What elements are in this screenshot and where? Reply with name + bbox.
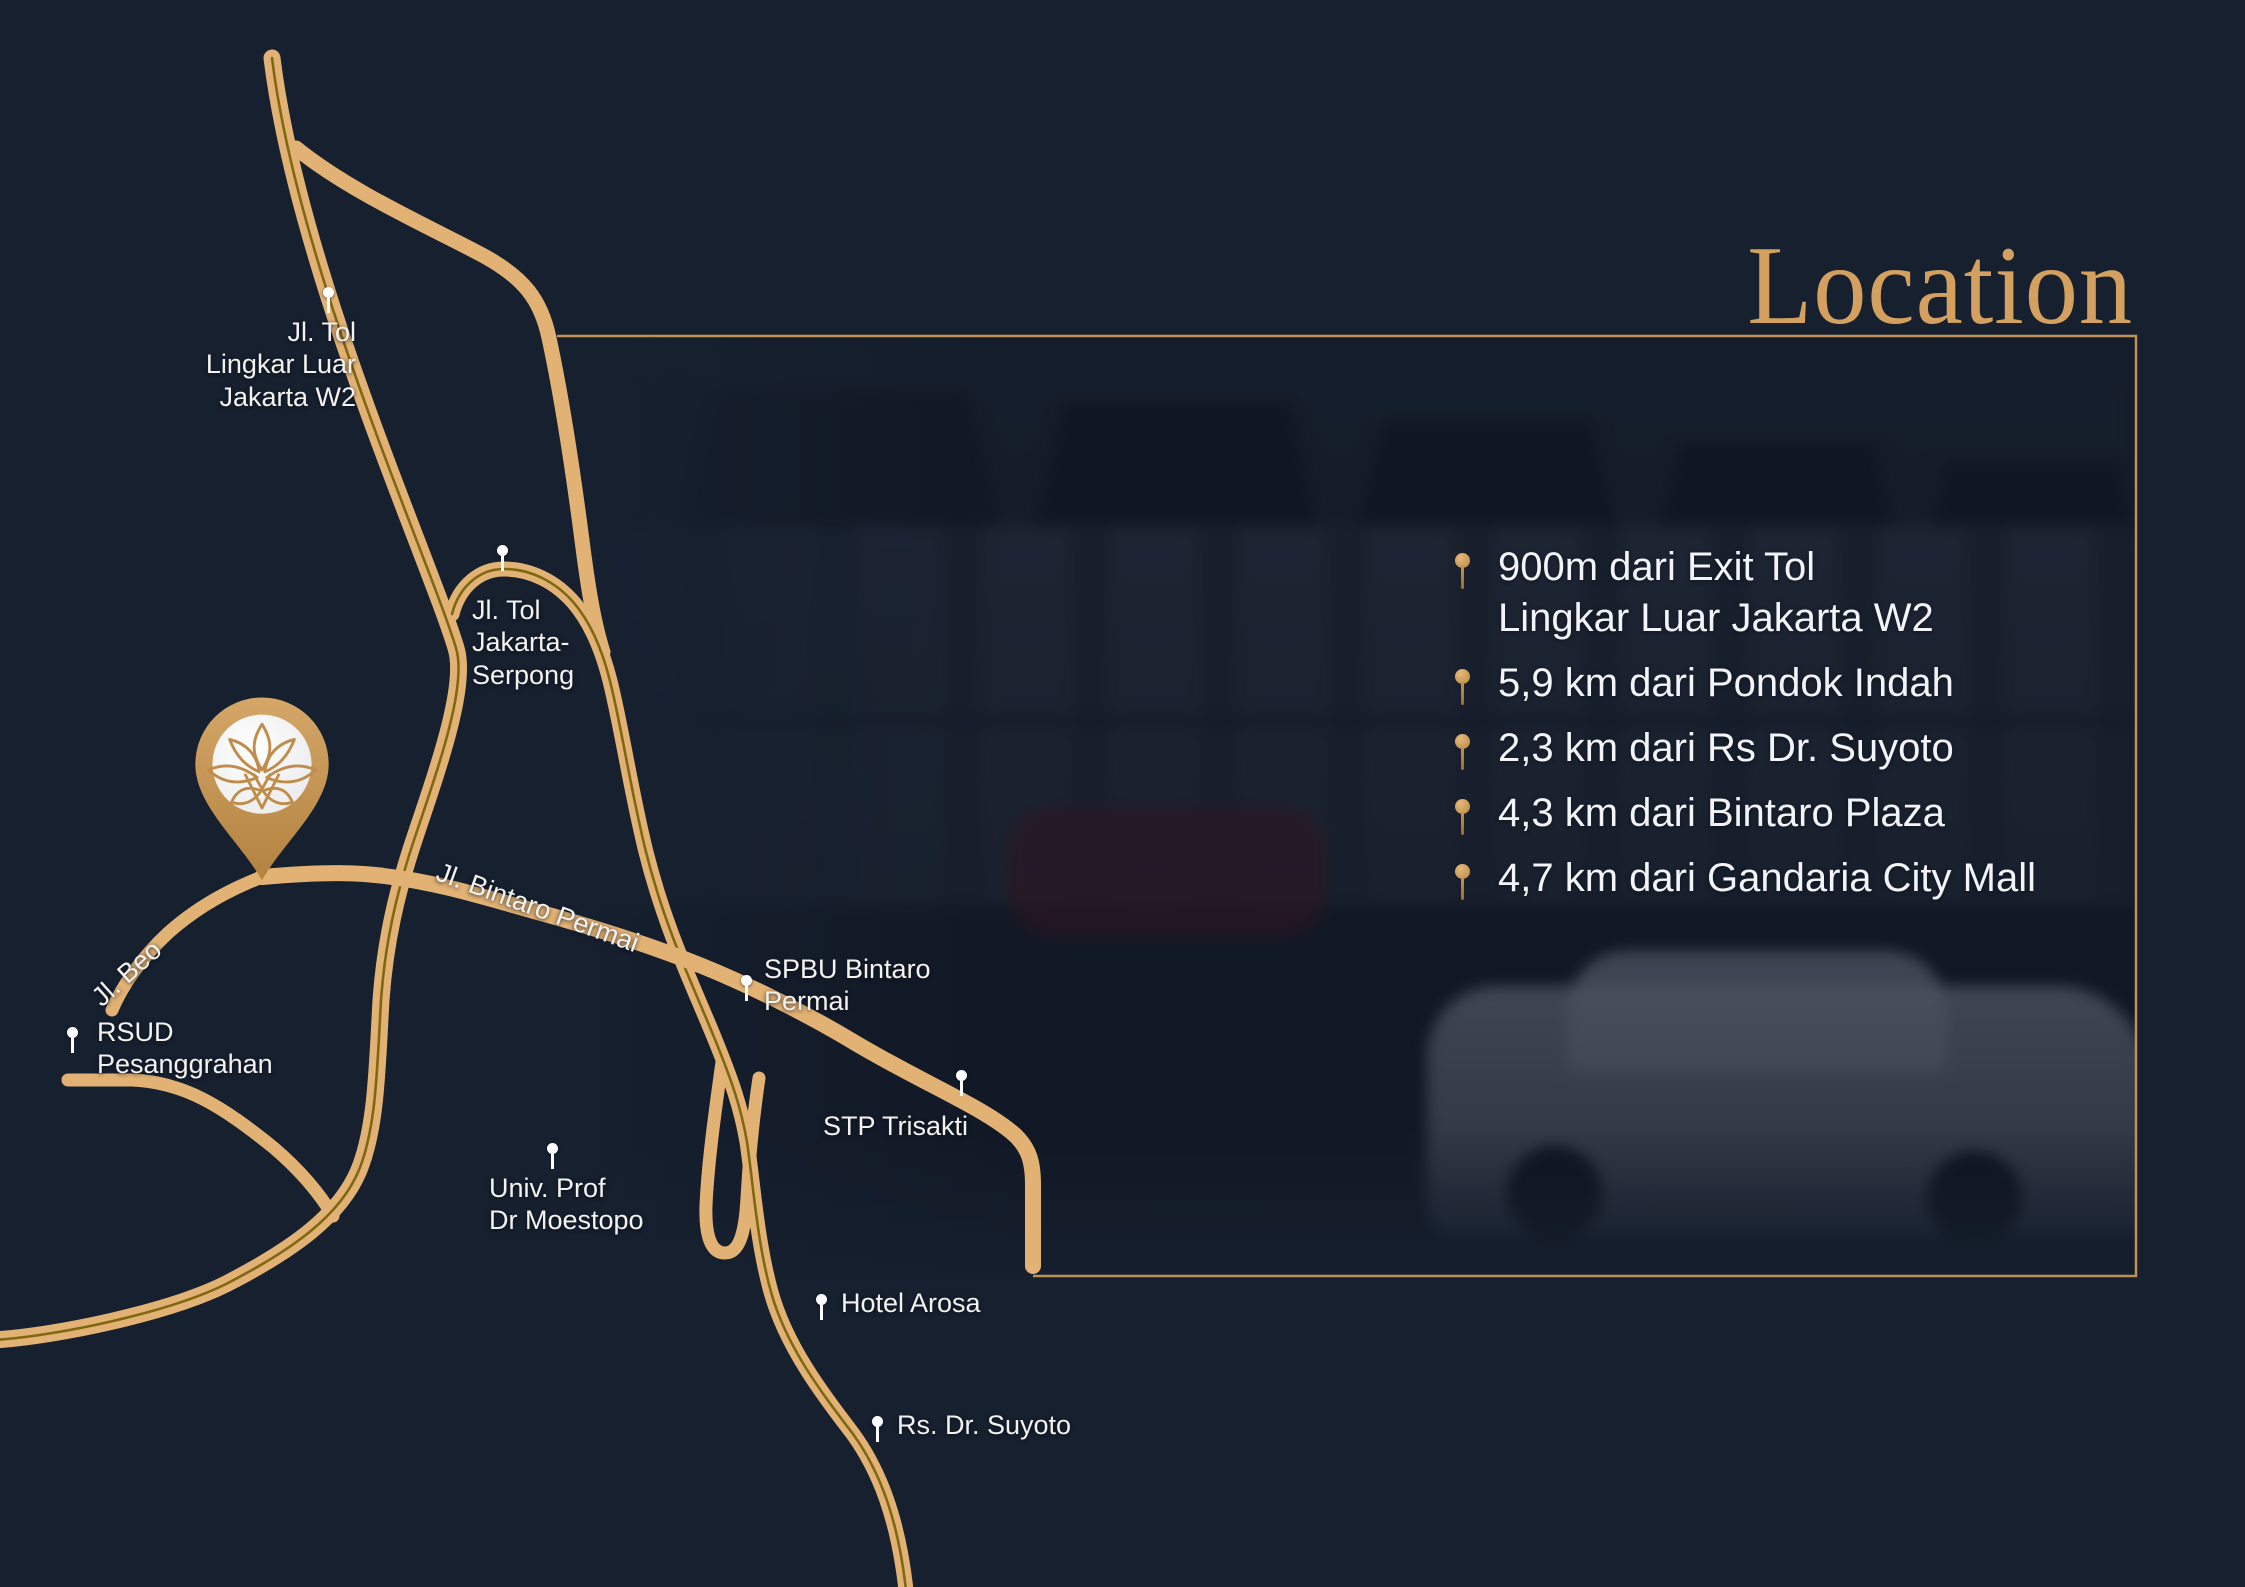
map-label-hotel-arosa: Hotel Arosa [841,1287,981,1319]
map-label-rs-dr-suyoto: Rs. Dr. Suyoto [897,1409,1071,1441]
gold-pin-icon [1455,734,1470,749]
push-pin-tol-lingkar-luar[interactable] [323,287,334,298]
map-label-tol-lingkar-luar: Jl. Tol Lingkar Luar Jakarta W2 [160,316,356,413]
push-pin-rs-dr-suyoto[interactable] [872,1416,883,1427]
map-label-tol-jakarta-serpong: Jl. Tol Jakarta- Serpong [472,594,574,691]
toll-center-line [452,569,906,1587]
push-pin-tol-jakarta-serpong[interactable] [497,545,508,556]
gold-pin-icon [1455,553,1470,568]
distance-list: 900m dari Exit Tol Lingkar Luar Jakarta … [1455,542,2175,918]
gold-pin-icon [1455,799,1470,814]
marker-core [212,715,311,814]
distance-text: 900m dari Exit Tol Lingkar Luar Jakarta … [1498,542,1934,644]
map-label-stp-trisakti: STP Trisakti [823,1110,968,1142]
road-toll-jakarta-serpong [452,569,906,1587]
list-item: 5,9 km dari Pondok Indah [1455,658,2175,709]
distance-text: 4,7 km dari Gandaria City Mall [1498,853,2036,904]
road-rsud [68,1080,333,1216]
push-pin-spbu-bintaro-permai[interactable] [741,975,752,986]
distance-text: 4,3 km dari Bintaro Plaza [1498,788,1945,839]
list-item: 4,7 km dari Gandaria City Mall [1455,853,2175,904]
list-item: 900m dari Exit Tol Lingkar Luar Jakarta … [1455,542,2175,644]
location-map-page: Jl. Tol Lingkar Luar Jakarta W2 Jl. Tol … [0,0,2245,1587]
push-pin-hotel-arosa[interactable] [816,1294,827,1305]
push-pin-univ-moestopo[interactable] [547,1143,558,1154]
push-pin-stp-trisakti[interactable] [956,1070,967,1081]
gold-pin-icon [1455,864,1470,879]
distance-text: 5,9 km dari Pondok Indah [1498,658,1954,709]
list-item: 2,3 km dari Rs Dr. Suyoto [1455,723,2175,774]
map-label-rsud-pesanggrahan: RSUD Pesanggrahan [97,1016,273,1081]
property-marker-pin[interactable] [182,688,342,888]
map-label-univ-moestopo: Univ. Prof Dr Moestopo [489,1172,644,1237]
distance-text: 2,3 km dari Rs Dr. Suyoto [1498,723,1954,774]
page-title: Location [1747,230,2133,342]
map-label-spbu-bintaro-permai: SPBU Bintaro Permai [764,953,931,1018]
list-item: 4,3 km dari Bintaro Plaza [1455,788,2175,839]
gold-pin-icon [1455,669,1470,684]
push-pin-rsud-pesanggrahan[interactable] [67,1027,78,1038]
